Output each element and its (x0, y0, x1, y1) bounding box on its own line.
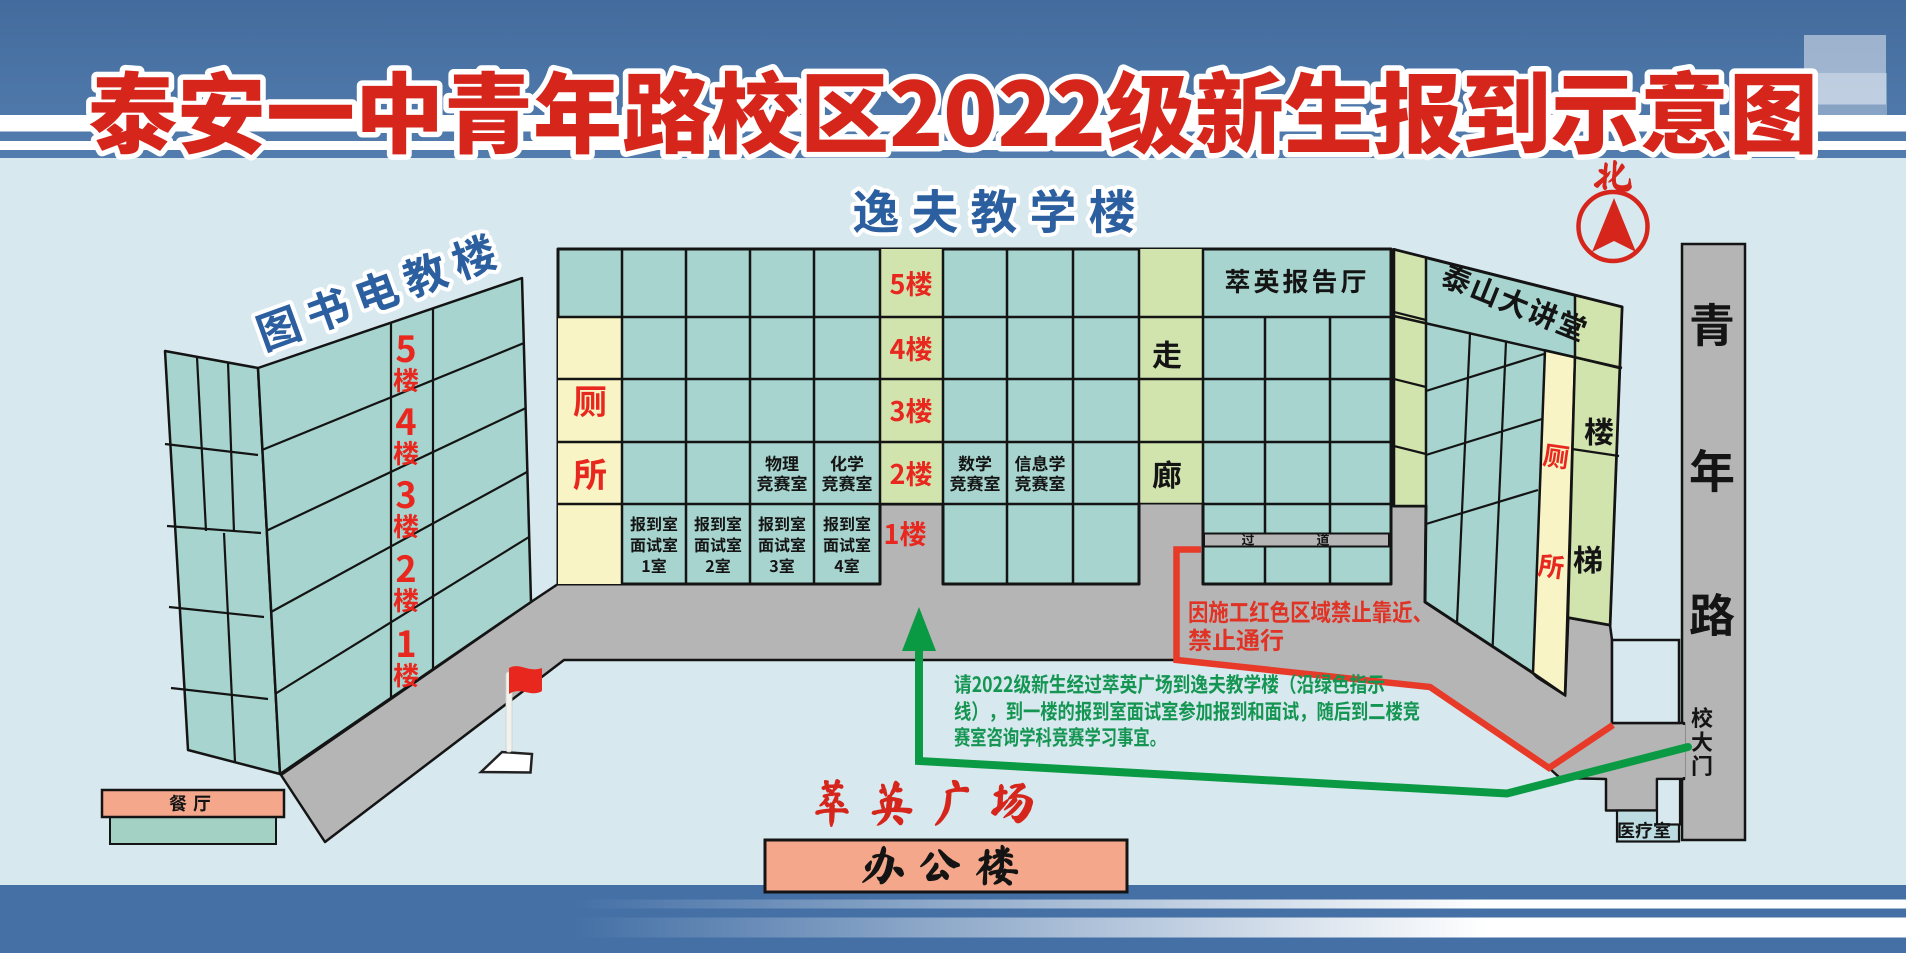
svg-text:逸夫教学楼: 逸夫教学楼 (853, 174, 1148, 243)
svg-text:1室: 1室 (641, 553, 666, 577)
svg-text:泰安一中青年路校区2022级新生报到示意图: 泰安一中青年路校区2022级新生报到示意图 (88, 45, 1818, 172)
svg-text:北: 北 (1593, 155, 1633, 195)
svg-text:2室: 2室 (705, 553, 730, 577)
svg-text:萃英广场: 萃英广场 (808, 778, 1048, 827)
svg-text:道: 道 (1316, 530, 1329, 549)
svg-text:竞赛室: 竞赛室 (950, 470, 1001, 495)
svg-text:2楼: 2楼 (890, 453, 933, 492)
svg-text:4楼: 4楼 (890, 328, 933, 367)
svg-text:5楼: 5楼 (890, 263, 933, 302)
svg-text:竞赛室: 竞赛室 (1015, 470, 1066, 495)
svg-text:所: 所 (1536, 545, 1567, 585)
svg-text:楼: 楼 (393, 656, 419, 693)
svg-text:过: 过 (1241, 530, 1254, 549)
svg-text:医疗室: 医疗室 (1617, 817, 1671, 843)
svg-text:萃英报告厅: 萃英报告厅 (1224, 262, 1369, 299)
svg-text:请2022级新生经过萃英广场到逸夫教学楼（沿绿色指示: 请2022级新生经过萃英广场到逸夫教学楼（沿绿色指示 (954, 669, 1385, 699)
svg-text:走: 走 (1152, 331, 1182, 375)
svg-text:4室: 4室 (834, 553, 859, 577)
svg-text:楼: 楼 (393, 434, 419, 471)
svg-text:3楼: 3楼 (890, 390, 933, 429)
svg-text:楼: 楼 (393, 581, 419, 618)
svg-text:竞赛室: 竞赛室 (822, 470, 873, 495)
svg-text:1楼: 1楼 (884, 513, 927, 552)
svg-text:竞赛室: 竞赛室 (757, 470, 808, 495)
svg-text:门: 门 (1691, 749, 1713, 781)
svg-text:3室: 3室 (769, 553, 794, 577)
svg-text:所: 所 (573, 448, 607, 497)
svg-text:厕: 厕 (573, 375, 607, 424)
svg-text:楼: 楼 (393, 507, 419, 544)
svg-text:禁止通行: 禁止通行 (1188, 621, 1284, 656)
svg-text:廊: 廊 (1152, 451, 1182, 495)
svg-text:厕: 厕 (1541, 435, 1572, 475)
svg-text:路: 路 (1689, 580, 1735, 646)
svg-text:青: 青 (1689, 290, 1735, 356)
svg-text:餐厅: 餐厅 (169, 790, 217, 816)
svg-text:年: 年 (1689, 436, 1735, 502)
svg-text:办公楼: 办公楼 (860, 842, 1031, 887)
svg-text:楼: 楼 (1584, 408, 1614, 452)
svg-text:楼: 楼 (393, 361, 419, 398)
svg-text:赛室咨询学科竞赛学习事宜。: 赛室咨询学科竞赛学习事宜。 (954, 722, 1166, 752)
svg-text:梯: 梯 (1573, 536, 1603, 580)
